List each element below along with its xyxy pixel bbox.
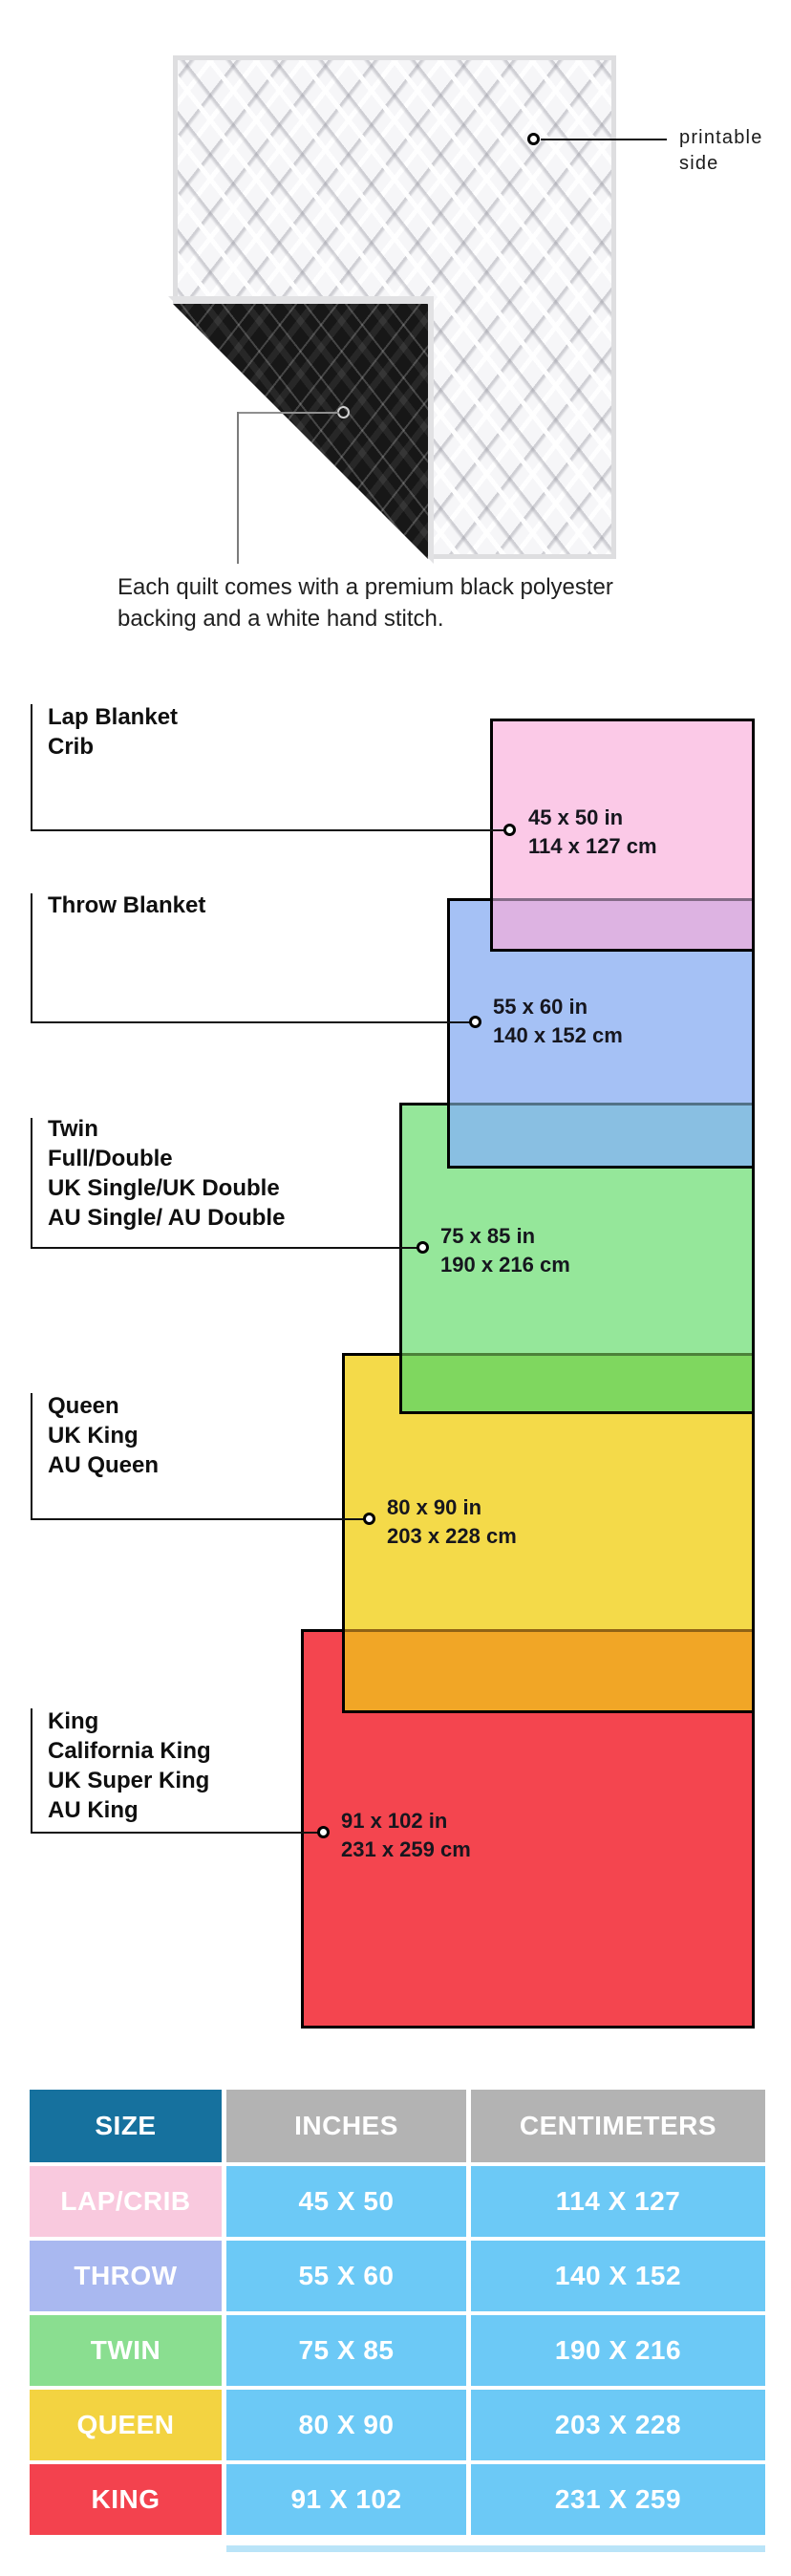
- table-cell-cm: 231 X 259: [471, 2464, 765, 2535]
- lap-marker-icon: [503, 824, 516, 836]
- king-callout-line-v: [31, 1708, 32, 1833]
- king-callout-line-h: [31, 1832, 318, 1834]
- twin-callout-line-v: [31, 1118, 32, 1248]
- queen-callout-line-h: [31, 1518, 364, 1520]
- table-cell-cm: 190 X 216: [471, 2315, 765, 2386]
- table-row-label: TWIN: [30, 2315, 222, 2386]
- lap-callout-line-v: [31, 704, 32, 831]
- overlap-twin-queen: [402, 1353, 752, 1411]
- king-marker-icon: [317, 1826, 330, 1838]
- overlap-lap-throw: [493, 898, 752, 949]
- table-cell-inches: 91 X 102: [226, 2464, 466, 2535]
- lap-dimensions: 45 x 50 in 114 x 127 cm: [528, 804, 657, 861]
- throw-dimensions: 55 x 60 in 140 x 152 cm: [493, 993, 623, 1050]
- throw-marker-icon: [469, 1016, 481, 1028]
- printable-side-label: printable side: [679, 125, 763, 177]
- table-cell-inches: 75 X 85: [226, 2315, 466, 2386]
- table-cell-cm: 114 X 127: [471, 2166, 765, 2237]
- table-header-size: SIZE: [30, 2090, 222, 2162]
- table-cell-inches: 45 X 50: [226, 2166, 466, 2237]
- backing-caption: Each quilt comes with a premium black po…: [118, 571, 613, 634]
- twin-marker-icon: [417, 1241, 429, 1254]
- table-header-centimeters: CENTIMETERS: [471, 2090, 765, 2162]
- backing-callout-line-h: [238, 412, 339, 414]
- label-twin: Twin Full/Double UK Single/UK Double AU …: [48, 1114, 285, 1233]
- table-cell-cm: 203 X 228: [471, 2390, 765, 2460]
- lap-callout-line-h: [31, 829, 504, 831]
- label-queen: Queen UK King AU Queen: [48, 1391, 159, 1480]
- overlap-throw-twin: [450, 1103, 752, 1166]
- queen-dimensions: 80 x 90 in 203 x 228 cm: [387, 1493, 517, 1551]
- queen-callout-line-v: [31, 1393, 32, 1519]
- printable-side-marker-icon: [527, 133, 540, 145]
- label-king: King California King UK Super King AU Ki…: [48, 1707, 211, 1825]
- label-throw: Throw Blanket: [48, 891, 205, 920]
- table-cell-cm: 140 X 152: [471, 2241, 765, 2311]
- table-row-label: KING: [30, 2464, 222, 2535]
- twin-dimensions: 75 x 85 in 190 x 216 cm: [440, 1222, 570, 1279]
- quilt-black-backing-fold: [173, 304, 428, 559]
- table-row-label: LAP/CRIB: [30, 2166, 222, 2237]
- size-table: SIZE INCHES CENTIMETERS LAP/CRIB 45 X 50…: [30, 2090, 765, 2535]
- label-lap: Lap Blanket Crib: [48, 702, 178, 762]
- overlap-queen-king: [345, 1629, 752, 1710]
- quilt-size-infographic: printable side Each quilt comes with a p…: [0, 0, 791, 2576]
- table-header-inches: INCHES: [226, 2090, 466, 2162]
- table-cell-inches: 55 X 60: [226, 2241, 466, 2311]
- table-cell-inches: 80 X 90: [226, 2390, 466, 2460]
- printable-side-callout-line: [541, 139, 667, 140]
- throw-callout-line-h: [31, 1021, 470, 1023]
- table-row-label: THROW: [30, 2241, 222, 2311]
- queen-marker-icon: [363, 1513, 375, 1525]
- backing-callout-line-v: [237, 412, 239, 564]
- twin-callout-line-h: [31, 1247, 417, 1249]
- king-dimensions: 91 x 102 in 231 x 259 cm: [341, 1807, 471, 1864]
- table-row-label: QUEEN: [30, 2390, 222, 2460]
- table-footer-strip: [226, 2545, 765, 2552]
- throw-callout-line-v: [31, 893, 32, 1022]
